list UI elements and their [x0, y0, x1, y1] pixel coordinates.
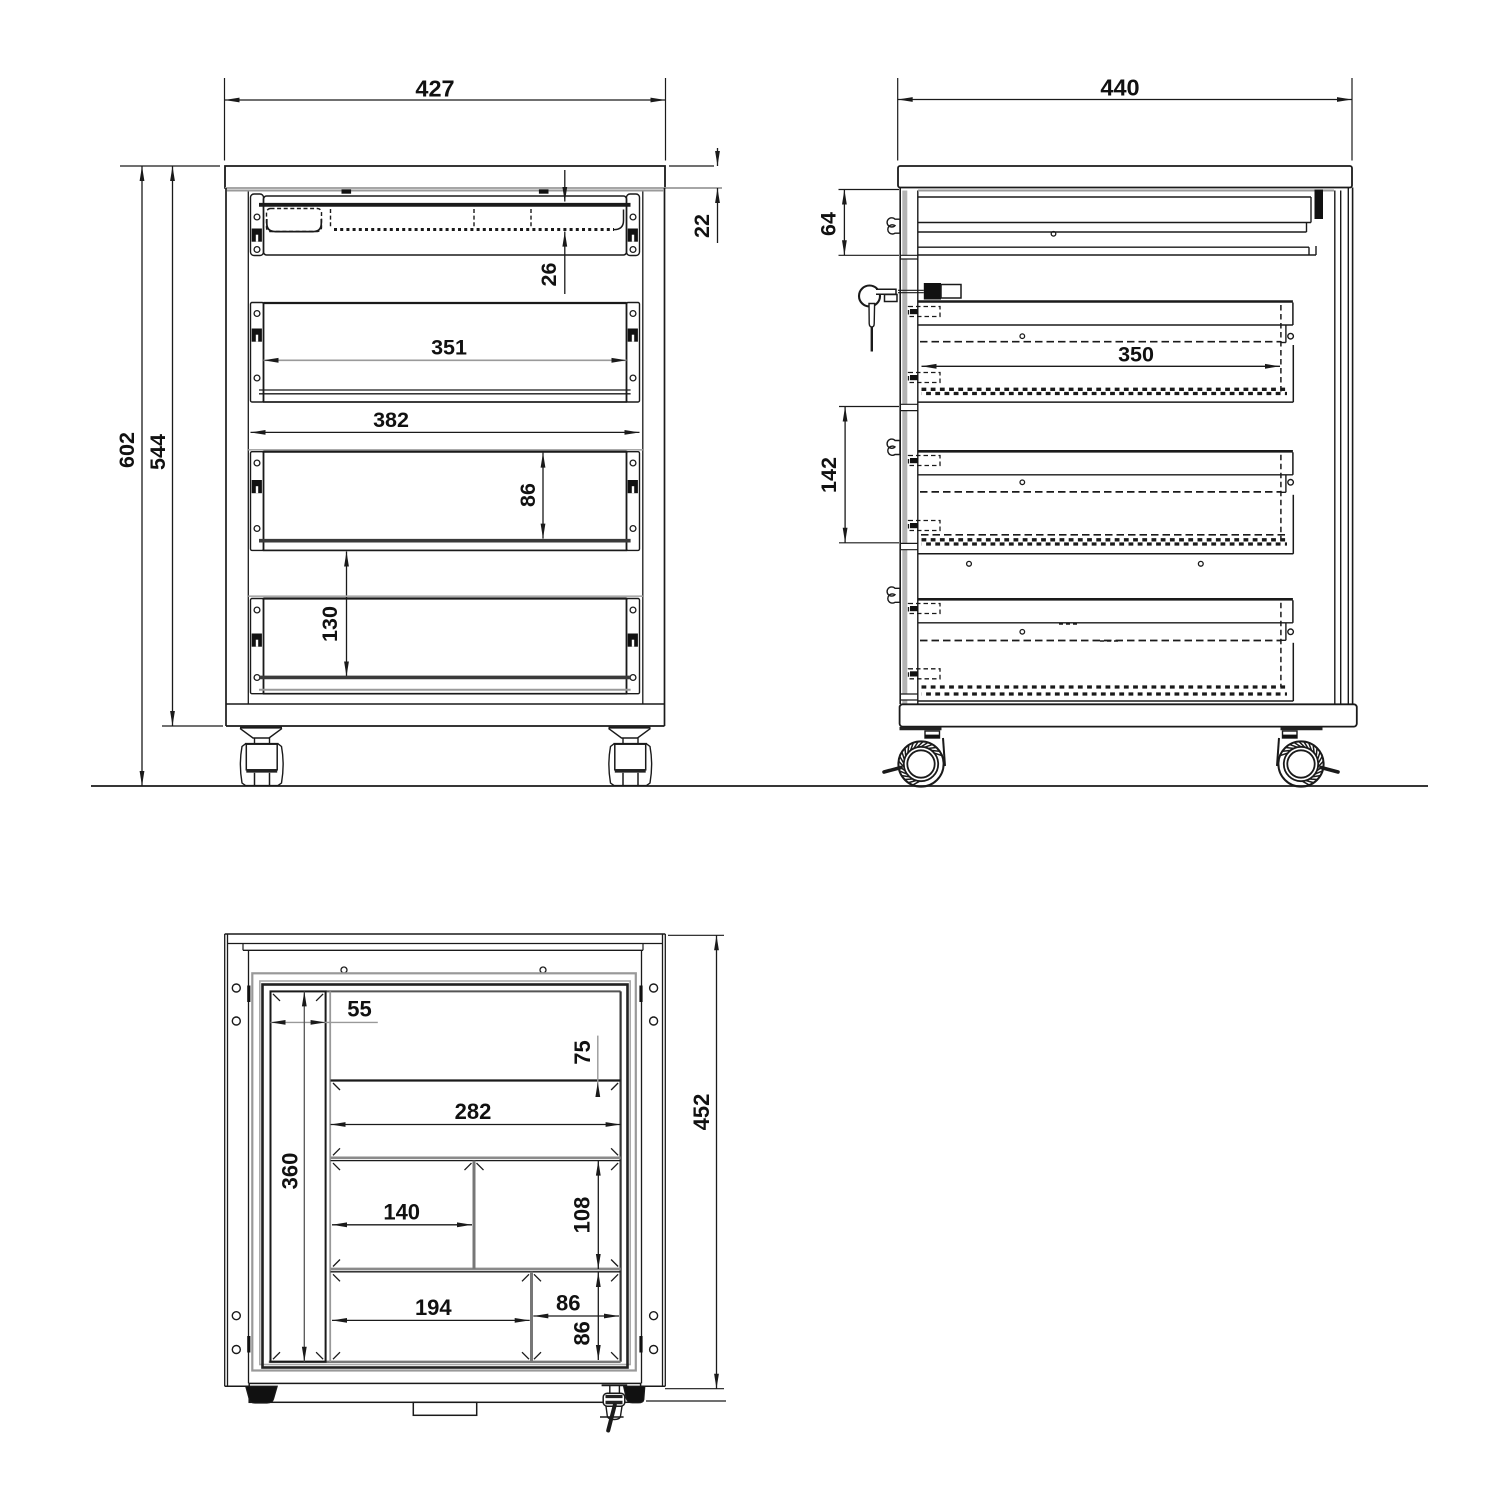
- svg-text:55: 55: [347, 997, 371, 1022]
- svg-text:140: 140: [383, 1199, 420, 1224]
- svg-text:351: 351: [431, 336, 467, 360]
- svg-text:452: 452: [689, 1094, 714, 1131]
- svg-text:350: 350: [1118, 343, 1154, 367]
- svg-text:26: 26: [537, 263, 561, 287]
- svg-text:427: 427: [415, 76, 454, 102]
- svg-text:194: 194: [415, 1295, 452, 1320]
- svg-text:602: 602: [115, 432, 139, 468]
- svg-text:142: 142: [817, 457, 841, 493]
- svg-text:64: 64: [817, 212, 841, 236]
- svg-text:282: 282: [455, 1099, 492, 1124]
- svg-text:360: 360: [277, 1153, 302, 1190]
- svg-text:130: 130: [318, 606, 342, 642]
- svg-text:86: 86: [516, 483, 540, 507]
- svg-text:108: 108: [569, 1197, 594, 1234]
- svg-text:86: 86: [569, 1321, 594, 1345]
- svg-text:22: 22: [690, 214, 714, 238]
- svg-text:75: 75: [570, 1040, 595, 1064]
- svg-text:86: 86: [556, 1291, 580, 1316]
- svg-text:440: 440: [1100, 75, 1139, 101]
- svg-text:382: 382: [373, 408, 409, 432]
- svg-text:544: 544: [146, 434, 170, 470]
